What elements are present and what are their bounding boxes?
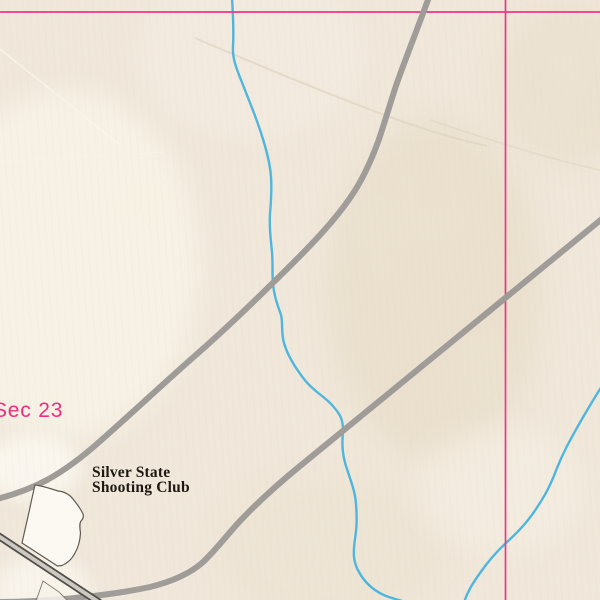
- section-label: Sec 23: [0, 399, 63, 423]
- poi-label: Silver State Shooting Club: [92, 466, 190, 495]
- poi-label-line2: Shooting Club: [92, 481, 190, 496]
- map-feature-layer: [0, 0, 600, 600]
- paper-noise: [0, 0, 600, 600]
- map-canvas[interactable]: Sec 23 Silver State Shooting Club: [0, 0, 600, 600]
